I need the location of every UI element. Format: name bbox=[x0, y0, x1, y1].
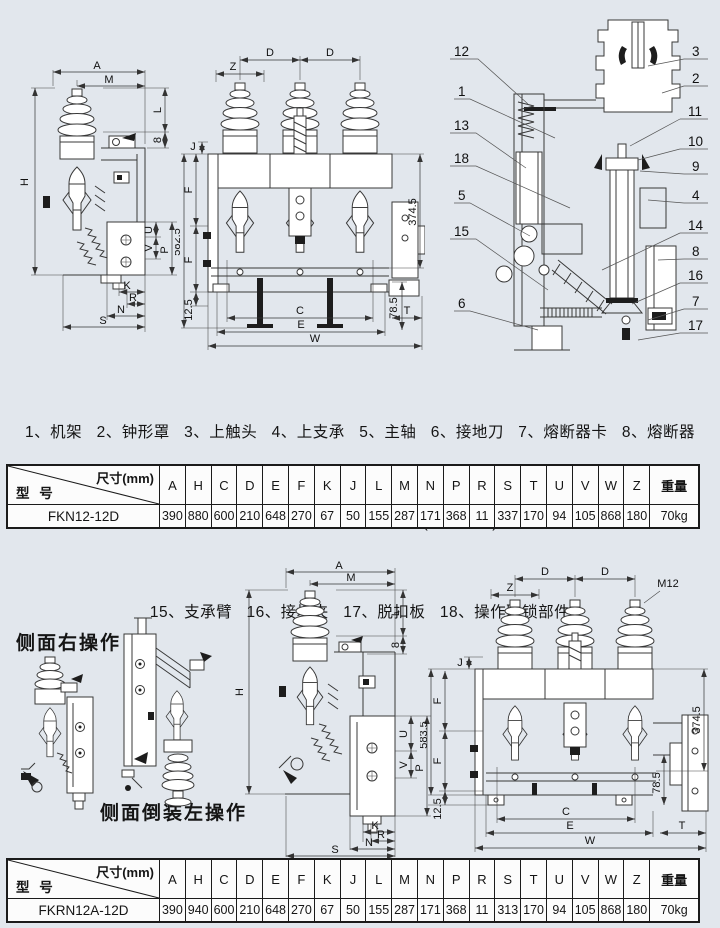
dim-label: T bbox=[404, 305, 411, 317]
dim-label: S bbox=[99, 315, 106, 327]
dim-value: 170 bbox=[521, 899, 547, 921]
table-corner-cell: 尺寸(mm) 型 号 bbox=[8, 466, 160, 504]
dim-label: Z bbox=[230, 61, 237, 73]
col-header: S bbox=[495, 860, 521, 898]
corner-size-label: 尺寸(mm) bbox=[96, 468, 154, 487]
dim-value: 390 bbox=[160, 505, 186, 527]
corner-model-label: 型 号 bbox=[16, 876, 56, 896]
small-side-inverted-linework bbox=[122, 618, 212, 806]
callout-label: 5 bbox=[458, 188, 466, 203]
dim-label: D bbox=[326, 47, 334, 59]
callout-label: 7 bbox=[692, 294, 700, 309]
col-header: P bbox=[444, 466, 470, 504]
col-header: T bbox=[521, 860, 547, 898]
col-header: U bbox=[547, 466, 573, 504]
dim-label: T bbox=[679, 820, 686, 832]
col-header: K bbox=[315, 466, 341, 504]
dim-value: 368 bbox=[444, 899, 470, 921]
dim-label: J bbox=[190, 141, 196, 153]
col-header: R bbox=[470, 466, 496, 504]
callout-label: 15 bbox=[454, 224, 469, 239]
dim-label: C bbox=[296, 305, 304, 317]
col-header: Z bbox=[624, 860, 650, 898]
dim-value: 210 bbox=[237, 505, 263, 527]
dim-value: 180 bbox=[624, 505, 650, 527]
corner-size-label: 尺寸(mm) bbox=[96, 862, 154, 881]
catalog-page: A M L 8 H U V P K R N S bbox=[0, 0, 720, 928]
weight-value: 70kg bbox=[650, 899, 698, 921]
dim-label: D bbox=[541, 566, 549, 578]
dim-value: 270 bbox=[289, 899, 315, 921]
dim-label: D bbox=[601, 566, 609, 578]
front-view-bottom-linework bbox=[470, 600, 708, 811]
dim-label: J bbox=[457, 657, 463, 669]
callout-label: 1 bbox=[458, 84, 466, 99]
dim-label: 8 bbox=[390, 642, 402, 648]
dim-label: L bbox=[152, 107, 164, 113]
drawing-section-view: 12 1 13 18 5 15 6 3 2 11 10 9 4 14 8 16 … bbox=[440, 8, 715, 353]
callout-label: 9 bbox=[692, 159, 700, 174]
dim-value: 105 bbox=[573, 505, 599, 527]
dim-label: U bbox=[398, 730, 410, 738]
callout-label: 3 bbox=[692, 44, 700, 59]
dim-label: 374.5 bbox=[691, 706, 703, 734]
col-header: T bbox=[521, 466, 547, 504]
dimension-table-1: 尺寸(mm) 型 号 A H C D E F K J L M N P R S T… bbox=[6, 464, 700, 529]
dim-label: 582.5 bbox=[175, 228, 183, 256]
dim-value: 67 bbox=[315, 505, 341, 527]
callout-label: 18 bbox=[454, 151, 469, 166]
dim-value: 67 bbox=[315, 899, 341, 921]
dim-label: N bbox=[365, 837, 373, 849]
callout-label: 13 bbox=[454, 118, 469, 133]
dim-label: K bbox=[123, 280, 131, 292]
col-header: U bbox=[547, 860, 573, 898]
dim-label: Z bbox=[507, 582, 514, 594]
dim-label: L bbox=[390, 610, 402, 616]
dim-label: 12.5 bbox=[183, 299, 195, 320]
dim-label: W bbox=[585, 835, 596, 847]
dim-label: F bbox=[432, 757, 444, 764]
col-header: E bbox=[263, 466, 289, 504]
small-side-right-linework bbox=[21, 657, 93, 809]
dim-label: 583.5 bbox=[420, 721, 430, 749]
col-header: V bbox=[573, 466, 599, 504]
dim-value: 171 bbox=[418, 505, 444, 527]
model-name: FKRN12A-12D bbox=[8, 899, 160, 921]
dim-value: 868 bbox=[599, 505, 625, 527]
dim-value: 171 bbox=[418, 899, 444, 921]
dim-value: 210 bbox=[237, 899, 263, 921]
col-header: P bbox=[444, 860, 470, 898]
col-header: H bbox=[186, 466, 212, 504]
dim-label: H bbox=[235, 688, 246, 696]
dim-value: 368 bbox=[444, 505, 470, 527]
callout-label: 14 bbox=[688, 218, 704, 233]
dim-label: V bbox=[398, 761, 410, 769]
dim-value: 50 bbox=[341, 899, 367, 921]
dim-label: 8 bbox=[152, 137, 164, 143]
dim-value: 648 bbox=[263, 899, 289, 921]
drawing-front-view-top: D D Z J 582.5 F F 12.5 374.5 C E W 78.5 … bbox=[175, 30, 425, 352]
callout-label: 2 bbox=[692, 71, 700, 86]
col-header: A bbox=[160, 860, 186, 898]
dim-value: 11 bbox=[470, 505, 496, 527]
dim-value: 94 bbox=[547, 899, 573, 921]
col-header: L bbox=[366, 466, 392, 504]
col-header: N bbox=[418, 466, 444, 504]
corner-model-label: 型 号 bbox=[16, 482, 56, 502]
col-header: D bbox=[237, 860, 263, 898]
col-header: R bbox=[470, 860, 496, 898]
col-header: A bbox=[160, 466, 186, 504]
drawing-small-side-right bbox=[15, 655, 110, 815]
drawing-front-view-bottom: D D Z M12 J 583.5 F F 12.5 374.5 78.5 C … bbox=[420, 555, 715, 855]
side-view-bottom-dimensions: A M L 8 H U V P K R N S bbox=[235, 560, 431, 857]
dim-label: M bbox=[346, 572, 355, 584]
dim-value: 11 bbox=[470, 899, 496, 921]
dim-value: 313 bbox=[495, 899, 521, 921]
col-header: D bbox=[237, 466, 263, 504]
label-side-right-operation: 侧面右操作 bbox=[16, 628, 121, 655]
model-name: FKN12-12D bbox=[8, 505, 160, 527]
drawing-small-side-inverted bbox=[112, 612, 217, 812]
callout-label: 12 bbox=[454, 44, 469, 59]
col-header: K bbox=[315, 860, 341, 898]
side-view-linework bbox=[43, 89, 145, 289]
col-header-weight: 重量 bbox=[650, 466, 698, 504]
dim-value: 600 bbox=[212, 899, 238, 921]
dim-label: D bbox=[266, 47, 274, 59]
callout-label: 10 bbox=[688, 134, 703, 149]
callout-label: 11 bbox=[688, 104, 702, 119]
dim-label: V bbox=[143, 244, 155, 252]
callout-label: 16 bbox=[688, 268, 703, 283]
callout-label: 17 bbox=[688, 318, 703, 333]
col-header: N bbox=[418, 860, 444, 898]
dim-label: W bbox=[310, 333, 321, 345]
dimension-table-2: 尺寸(mm) 型 号 A H C D E F K J L M N P R S T… bbox=[6, 858, 700, 923]
dim-label: E bbox=[566, 820, 573, 832]
dim-label: C bbox=[562, 806, 570, 818]
dim-value: 155 bbox=[366, 505, 392, 527]
dim-label: 374.5 bbox=[407, 198, 419, 226]
dim-label: R bbox=[377, 829, 385, 841]
dim-label: A bbox=[93, 60, 101, 72]
drawing-side-view-bottom: A M L 8 H U V P K R N S bbox=[235, 556, 445, 858]
col-header: E bbox=[263, 860, 289, 898]
col-header: W bbox=[599, 466, 625, 504]
dim-value: 287 bbox=[392, 505, 418, 527]
col-header: J bbox=[341, 466, 367, 504]
dim-label: R bbox=[129, 292, 137, 304]
dim-label: F bbox=[432, 697, 444, 704]
col-header: W bbox=[599, 860, 625, 898]
dim-value: 180 bbox=[624, 899, 650, 921]
col-header: C bbox=[212, 860, 238, 898]
dim-label: S bbox=[331, 844, 338, 856]
side-view-bottom-linework bbox=[279, 591, 395, 833]
dim-value: 94 bbox=[547, 505, 573, 527]
dim-label: U bbox=[143, 226, 155, 234]
table-corner-cell: 尺寸(mm) 型 号 bbox=[8, 860, 160, 898]
col-header: H bbox=[186, 860, 212, 898]
col-header: S bbox=[495, 466, 521, 504]
dim-label: M bbox=[104, 74, 113, 86]
dim-value: 50 bbox=[341, 505, 367, 527]
dim-label: 78.5 bbox=[651, 772, 663, 793]
col-header: F bbox=[289, 466, 315, 504]
dim-label: F bbox=[183, 256, 195, 263]
col-header: L bbox=[366, 860, 392, 898]
col-header: J bbox=[341, 860, 367, 898]
callout-label: 4 bbox=[692, 188, 700, 203]
callout-label: 6 bbox=[458, 296, 466, 311]
callout-label: 8 bbox=[692, 244, 700, 259]
dim-value: 940 bbox=[186, 899, 212, 921]
side-view-dimensions: A M L 8 H U V P K R N S bbox=[19, 60, 177, 332]
dim-value: 868 bbox=[599, 899, 625, 921]
col-header: M bbox=[392, 860, 418, 898]
col-header: V bbox=[573, 860, 599, 898]
dim-value: 287 bbox=[392, 899, 418, 921]
drawing-side-view-top: A M L 8 H U V P K R N S bbox=[15, 30, 195, 332]
col-header: C bbox=[212, 466, 238, 504]
dim-value: 337 bbox=[495, 505, 521, 527]
front-view-linework bbox=[203, 83, 425, 328]
dim-label: M12 bbox=[657, 578, 678, 590]
legend-line-1: 1、机架 2、钟形罩 3、上触头 4、上支承 5、主轴 6、接地刀 7、熔断器卡… bbox=[0, 418, 720, 448]
dim-value: 648 bbox=[263, 505, 289, 527]
dim-label: P bbox=[159, 246, 171, 253]
dim-label: N bbox=[117, 304, 125, 316]
dim-label: 12.5 bbox=[432, 798, 444, 819]
dim-label: 78.5 bbox=[388, 297, 400, 318]
weight-value: 70kg bbox=[650, 505, 698, 527]
dim-value: 390 bbox=[160, 899, 186, 921]
dim-value: 105 bbox=[573, 899, 599, 921]
col-header-weight: 重量 bbox=[650, 860, 698, 898]
dim-value: 270 bbox=[289, 505, 315, 527]
col-header: F bbox=[289, 860, 315, 898]
dim-value: 880 bbox=[186, 505, 212, 527]
dim-label: A bbox=[335, 560, 343, 572]
dim-label: E bbox=[297, 319, 304, 331]
section-linework bbox=[496, 20, 680, 350]
col-header: M bbox=[392, 466, 418, 504]
dim-label: H bbox=[19, 178, 31, 186]
dim-value: 600 bbox=[212, 505, 238, 527]
dim-value: 155 bbox=[366, 899, 392, 921]
col-header: Z bbox=[624, 466, 650, 504]
dim-value: 170 bbox=[521, 505, 547, 527]
dim-label: F bbox=[183, 186, 195, 193]
